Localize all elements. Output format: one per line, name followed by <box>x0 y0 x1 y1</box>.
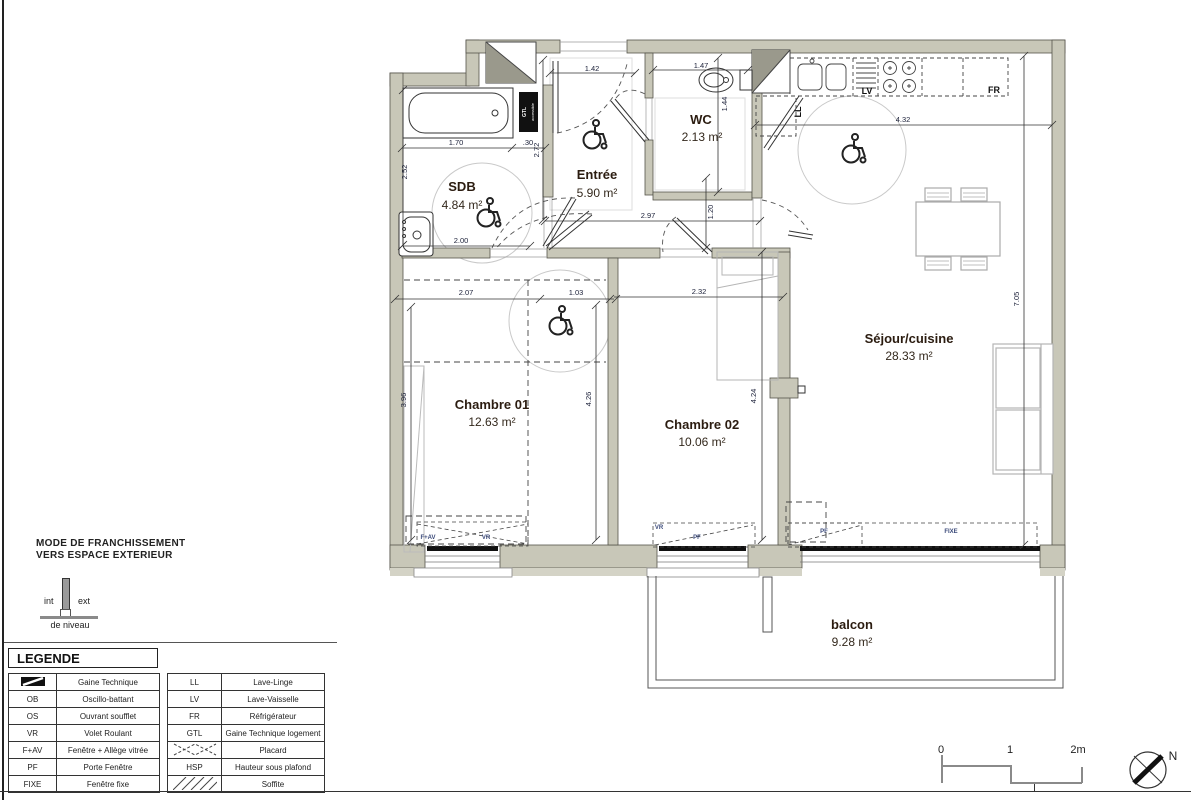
label-sejour-fixe: FIXE <box>944 529 957 535</box>
legend-table-right: LL Lave-Linge LV Lave-Vaisselle FR Réfri… <box>167 673 325 793</box>
legend-row: GTL Gaine Technique logement <box>168 725 325 742</box>
legend-panel-divider <box>3 642 337 643</box>
dim-sejour-width: 4.32 <box>896 115 911 124</box>
wall-outlet <box>798 386 805 393</box>
legend-abbr: PF <box>9 759 57 776</box>
room-wc-name: WC <box>690 112 712 127</box>
room-sejour-name: Séjour/cuisine <box>865 331 954 346</box>
legend-label: Ouvrant soufflet <box>57 708 160 725</box>
legend-row: OB Oscillo-battant <box>9 691 160 708</box>
legend-title: LEGENDE <box>8 648 158 668</box>
sheet-border-bottom <box>0 791 1191 792</box>
toilet <box>699 68 752 92</box>
dim-ch2-depth: 4.24 <box>749 389 758 404</box>
label-ch2-vr: VR <box>655 525 664 531</box>
dim-wc-depth: 1.44 <box>720 97 729 112</box>
legend-row: F+AV Fenêtre + Allège vitrée <box>9 742 160 759</box>
placard-icon <box>168 742 222 759</box>
dim-entree-depth: 2.72 <box>532 143 541 158</box>
legend-row: HSP Hauteur sous plafond <box>168 759 325 776</box>
legend-abbr: VR <box>9 725 57 742</box>
dim-ch1-door: 1.03 <box>569 288 584 297</box>
legend-abbr: OB <box>9 691 57 708</box>
kitchen-counter <box>756 58 1008 136</box>
exterior-note: MODE DE FRANCHISSEMENT VERS ESPACE EXTER… <box>36 538 185 562</box>
dim-sejour-depth: 7.05 <box>1012 292 1021 307</box>
legend-abbr: HSP <box>168 759 222 776</box>
legend-label: Lave-Linge <box>222 674 325 691</box>
level-label: de niveau <box>38 620 102 630</box>
room-sdb-name: SDB <box>448 179 475 194</box>
legend-label: Oscillo-battant <box>57 691 160 708</box>
legend-label: Fenêtre fixe <box>57 776 160 793</box>
label-sejour-pf: PF <box>820 529 828 535</box>
legend-row: Placard <box>168 742 325 759</box>
legend-row: LV Lave-Vaisselle <box>168 691 325 708</box>
room-sejour-area: 28.33 m² <box>885 349 932 363</box>
dim-ch1-depth: 3.96 <box>399 393 408 408</box>
dim-entree-width: 1.42 <box>585 64 600 73</box>
legend-row: PF Porte Fenêtre <box>9 759 160 776</box>
legend-row: VR Volet Roulant <box>9 725 160 742</box>
dim-bath-length: 1.70 <box>449 138 464 147</box>
soffite-icon <box>168 776 222 793</box>
legend-row: Gaine Technique <box>9 674 160 691</box>
sheet-border-tick <box>1034 784 1035 792</box>
legend-abbr: FR <box>168 708 222 725</box>
legend-label: Lave-Vaisselle <box>222 691 325 708</box>
room-ch2-area: 10.06 m² <box>678 435 725 449</box>
legend-label: Réfrigérateur <box>222 708 325 725</box>
scale-0: 0 <box>938 744 944 756</box>
threshold-ground-line <box>40 616 98 619</box>
legend-abbr: F+AV <box>9 742 57 759</box>
legend-abbr: FIXE <box>9 776 57 793</box>
gaine-technique-icon <box>9 674 57 691</box>
legend-label: Placard <box>222 742 325 759</box>
dim-ch1-inner-depth: 4.26 <box>584 392 593 407</box>
dim-hall-width: 2.97 <box>641 211 656 220</box>
label-ch1-fav: F+AV <box>420 535 435 541</box>
bed-chambre-02 <box>717 252 778 380</box>
sofa <box>993 344 1053 474</box>
legend-label: Hauteur sous plafond <box>222 759 325 776</box>
dim-ch1-width: 2.07 <box>459 288 474 297</box>
floor-plan-sheet: GTL accessible LV FR LL <box>0 0 1191 800</box>
legend-abbr: LL <box>168 674 222 691</box>
legend-abbr: OS <box>9 708 57 725</box>
dim-sdb-depth: 2.52 <box>400 165 409 180</box>
dining-table <box>916 188 1000 270</box>
legend-label: Fenêtre + Allège vitrée <box>57 742 160 759</box>
int-label: int <box>44 596 54 606</box>
legend-row: LL Lave-Linge <box>168 674 325 691</box>
dim-sdb-width: 2.00 <box>454 236 469 245</box>
room-ch1-name: Chambre 01 <box>455 397 529 412</box>
legend-abbr: LV <box>168 691 222 708</box>
scale-2m: 2m <box>1070 744 1085 756</box>
dishwasher-label: LV <box>862 86 873 96</box>
gtl-sublabel: accessible <box>531 103 535 121</box>
room-entree-name: Entrée <box>577 167 617 182</box>
legend-label: Gaine Technique logement <box>222 725 325 742</box>
north-label: N <box>1169 749 1178 763</box>
legend-label: Soffite <box>222 776 325 793</box>
legend-label: Gaine Technique <box>57 674 160 691</box>
dim-ch2-width: 2.32 <box>692 287 707 296</box>
legend-row: Soffite <box>168 776 325 793</box>
legend-abbr: GTL <box>168 725 222 742</box>
washbasin <box>399 212 433 256</box>
legend-label: Volet Roulant <box>57 725 160 742</box>
room-wc-area: 2.13 m² <box>682 130 723 144</box>
legend-row: FIXE Fenêtre fixe <box>9 776 160 793</box>
label-ch1-vr: VR <box>482 535 491 541</box>
room-ch1-area: 12.63 m² <box>468 415 515 429</box>
ext-label: ext <box>78 596 90 606</box>
scale-1: 1 <box>1007 744 1013 756</box>
label-ch2-pf: PF <box>693 535 701 541</box>
scale-bar: 0 1 2m <box>938 744 1086 783</box>
exterior-note-line2: VERS ESPACE EXTERIEUR <box>36 550 173 561</box>
room-entree-area: 5.90 m² <box>577 186 618 200</box>
room-balcon-name: balcon <box>831 617 873 632</box>
room-balcon-area: 9.28 m² <box>832 635 873 649</box>
room-sdb-area: 4.84 m² <box>442 198 483 212</box>
legend-label: Porte Fenêtre <box>57 759 160 776</box>
dim-hall-depth: 1.20 <box>706 205 715 220</box>
gtl-label: GTL <box>522 107 528 117</box>
dim-wc-width: 1.47 <box>694 61 709 70</box>
legend-table-left: Gaine Technique OB Oscillo-battant OS Ou… <box>8 673 160 793</box>
gtl-box: GTL accessible <box>519 92 538 132</box>
room-ch2-name: Chambre 02 <box>665 417 739 432</box>
north-arrow-icon: N <box>1130 749 1177 788</box>
bathtub <box>403 88 513 138</box>
balcony-rail <box>648 576 1063 688</box>
window-annotation-labels: F+AV VR VR PF PF FIXE <box>420 525 957 541</box>
washer-label: LL <box>793 106 803 117</box>
sheet-border-left <box>2 0 4 800</box>
fridge-label: FR <box>988 85 1000 95</box>
legend-row: OS Ouvrant soufflet <box>9 708 160 725</box>
exterior-note-line1: MODE DE FRANCHISSEMENT <box>36 538 185 549</box>
legend-row: FR Réfrigérateur <box>168 708 325 725</box>
